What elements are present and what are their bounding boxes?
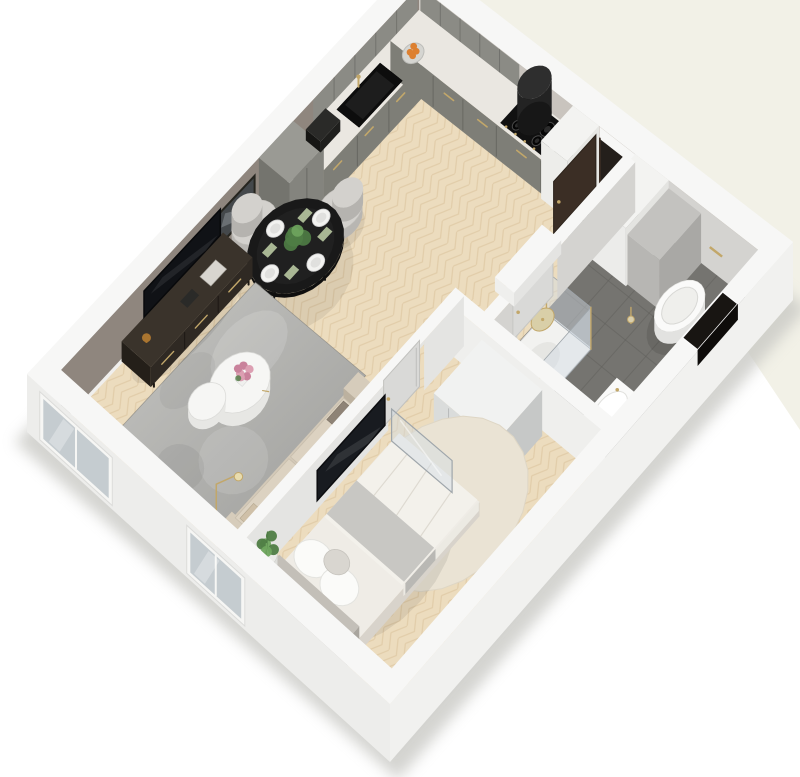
decor-vase (142, 333, 151, 342)
floorplan-scene: WELCOME (0, 0, 800, 777)
range-hood (517, 66, 551, 136)
apartment-3d-floorplan-render: WELCOME (0, 0, 800, 777)
